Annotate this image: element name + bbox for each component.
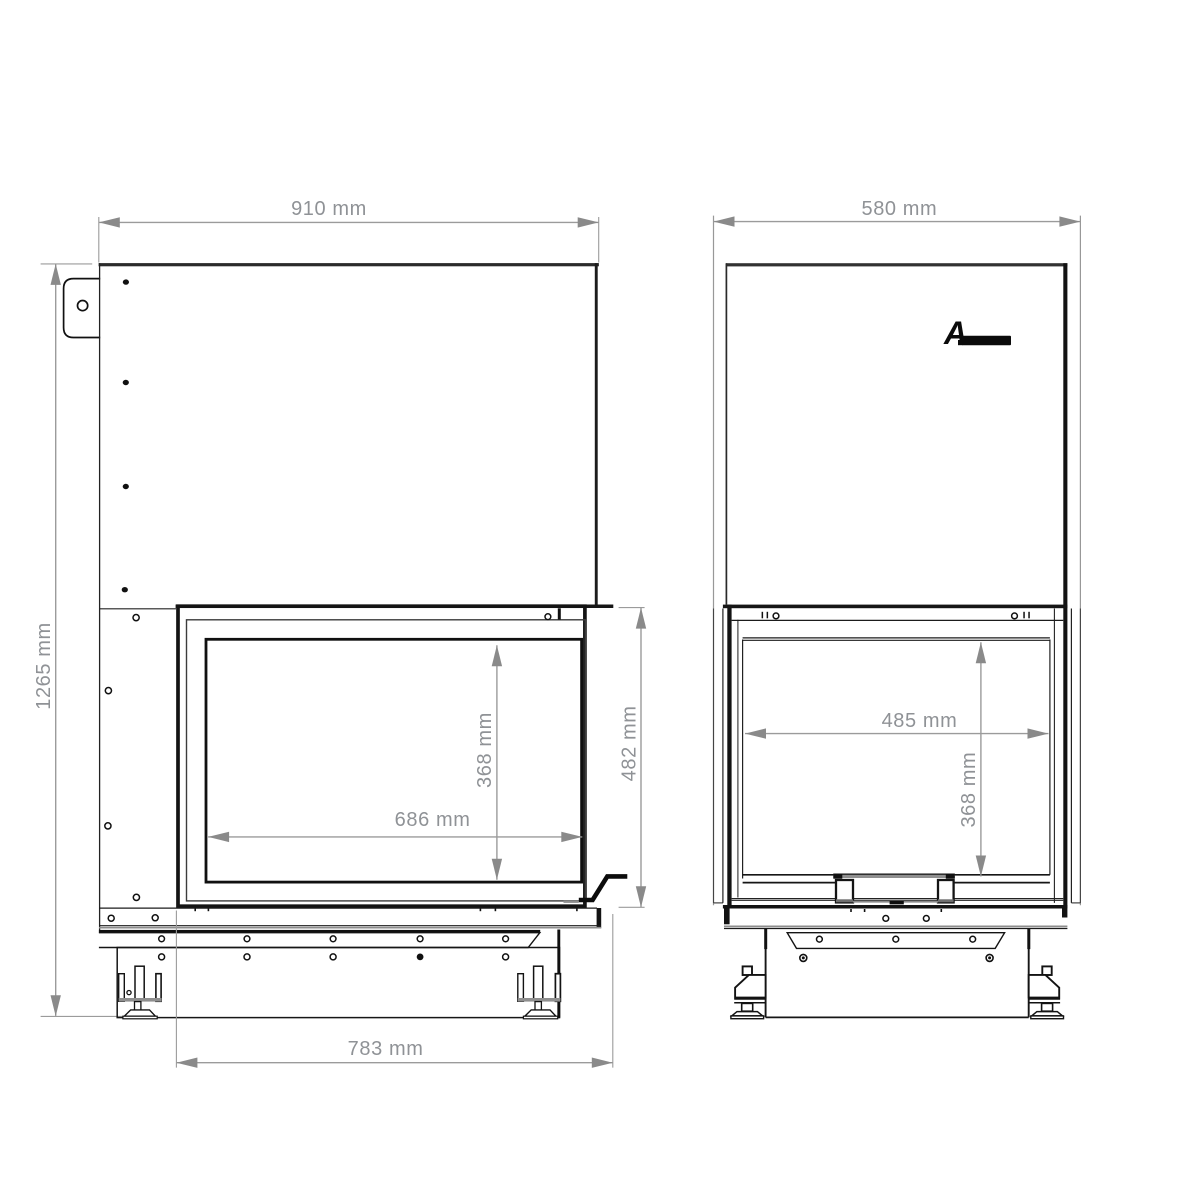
svg-text:686 mm: 686 mm xyxy=(395,809,471,831)
svg-text:783 mm: 783 mm xyxy=(348,1038,424,1060)
svg-text:910 mm: 910 mm xyxy=(291,198,367,220)
svg-text:485 mm: 485 mm xyxy=(882,710,958,732)
svg-text:368 mm: 368 mm xyxy=(958,752,980,828)
svg-text:482 mm: 482 mm xyxy=(618,705,640,781)
svg-text:1265 mm: 1265 mm xyxy=(33,622,55,710)
svg-text:368 mm: 368 mm xyxy=(474,712,496,788)
svg-text:580 mm: 580 mm xyxy=(861,198,937,220)
svg-text:A: A xyxy=(943,315,967,351)
